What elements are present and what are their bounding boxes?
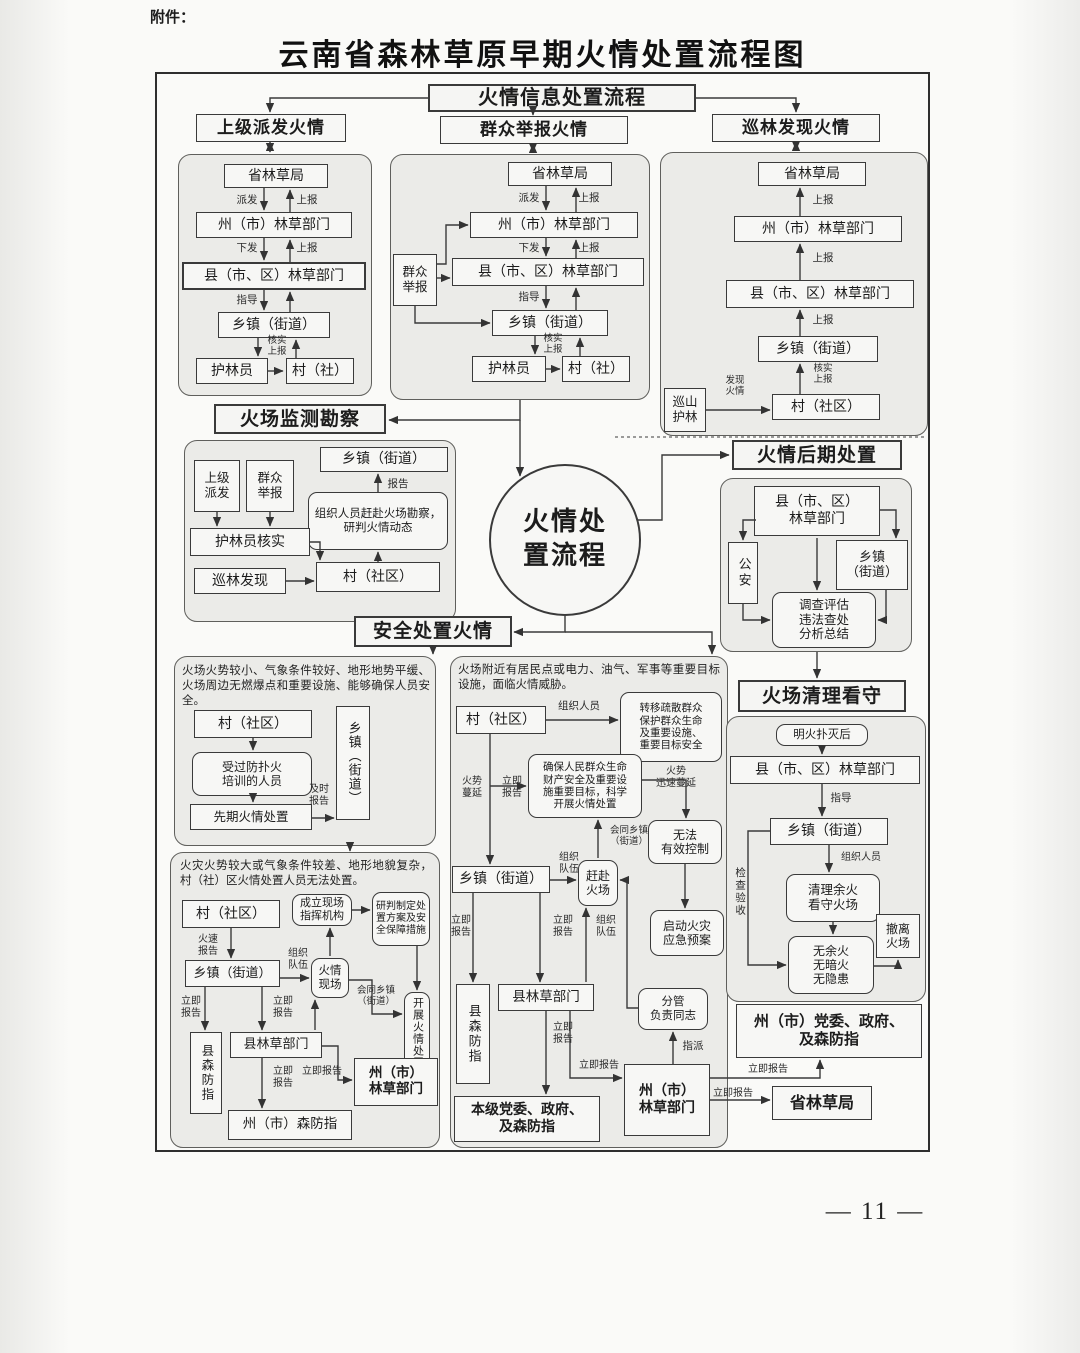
org-village-community: 村（社区） — [316, 562, 440, 592]
org-province-bureau: 省林草局 — [758, 162, 866, 186]
cleanup-section-title: 火场清理看守 — [738, 680, 906, 712]
arrow-label-immediate-report: 立即 报告 — [446, 915, 476, 938]
task-investigate-summarize: 调查评估 违法查处 分析总结 — [772, 592, 876, 648]
org-village-community: 村（社区） — [456, 706, 546, 734]
org-county-dept: 县（市、区） 林草部门 — [754, 486, 880, 536]
arrow-label-immediate-report: 立即 报告 — [268, 996, 298, 1019]
arrow-label-fast-spread: 火势 迅速蔓延 — [648, 766, 704, 789]
arrow-label-urgent-report: 火速 报告 — [192, 934, 224, 957]
arrow-label-report: 上报 — [808, 252, 838, 264]
arrow-label-immediate-report: 立即 报告 — [496, 776, 528, 799]
org-prefecture-fire-command: 州（市）森防指 — [228, 1110, 352, 1140]
source-public-report: 群众 举报 — [246, 460, 294, 512]
org-village-community: 村（社区） — [194, 710, 312, 738]
task-survey-fire-scene: 组织人员赶赴火场勘察，研判火情动态 — [308, 492, 448, 550]
org-township: 乡镇 （街道） — [836, 540, 908, 590]
branch-dispatch-title: 上级派发火情 — [196, 114, 346, 142]
threat-fire-condition: 火场附近有居民点或电力、油气、军事等重要目标设施，面临火情威胁。 — [458, 662, 720, 692]
arrow-label-guide: 指导 — [826, 792, 856, 804]
state-uncontrollable: 无法 有效控制 — [648, 820, 722, 864]
arrow-label-immediate-report: 立即 报告 — [548, 1022, 578, 1045]
source-superior-dispatch: 上级 派发 — [194, 460, 240, 512]
arrow-label-issue: 下发 — [232, 242, 262, 254]
org-county-dept: 县（市、区）林草部门 — [726, 280, 914, 308]
org-township: 乡镇（街道） — [452, 866, 550, 893]
role-leader-in-charge: 分管 负责同志 — [638, 988, 708, 1030]
arrow-label-report: 上报 — [292, 242, 322, 254]
node-fire-scene: 火情 现场 — [311, 958, 349, 998]
arrow-label-verify-report: 核实 上报 — [538, 334, 568, 356]
arrow-label-inspect-accept: 检查验收 — [734, 850, 746, 934]
org-prefecture-forestry-dept: 州（市） 林草部门 — [624, 1064, 710, 1136]
org-county-fire-command: 县森防指 — [190, 1032, 222, 1114]
scanned-flowchart-page: 附件： 云南省森林草原早期火情处置流程图 — 11 — 火情信息处置流程 上级派… — [0, 0, 1080, 1353]
page-number: — 11 — — [795, 1198, 955, 1226]
page-edge-shading-right — [1010, 0, 1080, 1353]
monitor-section-title: 火场监测勘察 — [214, 404, 386, 434]
org-local-party-gov-command: 本级党委、政府、 及森防指 — [454, 1096, 600, 1142]
org-county-dept: 县（市、区）林草部门 — [182, 262, 366, 290]
org-ranger: 护林员 — [196, 358, 268, 384]
info-process-header: 火情信息处置流程 — [428, 84, 696, 112]
org-township: 乡镇（街道） — [758, 336, 878, 362]
arrow-label-assign: 指派 — [678, 1040, 708, 1052]
arrow-label-report: 上报 — [808, 194, 838, 206]
branch-public-title: 群众举报火情 — [440, 116, 628, 144]
org-village-community: 村（社区） — [182, 900, 280, 928]
large-fire-condition: 火灾火势较大或气象条件较差、地形地貌复杂，村（社）区火情处置人员无法处置。 — [180, 858, 432, 888]
central-process-circle: 火情处置流程 — [489, 464, 641, 616]
arrow-label-issue: 下发 — [514, 242, 544, 254]
step-leave-fire-scene: 撤离 火场 — [876, 914, 920, 958]
arrow-label-joint-township: 会同乡镇 （街道） — [352, 986, 400, 1008]
arrow-label-immediate-report: 立即报告 — [708, 1088, 758, 1100]
page-title: 云南省森林草原早期火情处置流程图 — [155, 30, 930, 74]
step-ranger-verify: 护林员核实 — [190, 528, 310, 556]
org-province-bureau: 省林草局 — [224, 164, 328, 188]
step-trained-personnel: 受过防扑火 培训的人员 — [192, 752, 312, 796]
task-ensure-safety: 确保人民群众生命 财产安全及重要设 施重要目标，科学 开展火情处置 — [528, 754, 642, 818]
step-early-disposal: 先期火情处置 — [190, 804, 312, 830]
arrow-label-report: 上报 — [574, 242, 604, 254]
org-mountain-patrol: 巡山 护林 — [664, 388, 706, 432]
step-patrol-found: 巡林发现 — [194, 568, 286, 594]
arrow-label-timely-report: 及时 报告 — [302, 784, 336, 807]
org-prefecture-dept: 州（市）林草部门 — [196, 212, 352, 238]
org-village-community: 村（社区） — [772, 394, 880, 420]
org-village: 村（社） — [286, 358, 354, 384]
arrow-label-immediate-report: 立即报告 — [742, 1064, 794, 1076]
org-township: 乡镇（街道） — [770, 818, 888, 845]
org-county-dept: 县（市、区）林草部门 — [452, 258, 644, 286]
arrow-label-report: 上报 — [808, 314, 838, 326]
arrow-label-verify-report: 核实 上报 — [262, 336, 292, 358]
arrow-label-report: 上报 — [292, 194, 322, 206]
arrow-label-organize-team: 组织 队伍 — [282, 948, 314, 971]
arrow-label-dispatch: 派发 — [232, 194, 262, 206]
task-clear-and-guard: 清理余火 看守火场 — [786, 874, 880, 922]
arrow-label-immediate-report: 立即 报告 — [548, 915, 578, 938]
arrow-label-immediate-report: 立即报告 — [296, 1066, 348, 1078]
branch-patrol-title: 巡林发现火情 — [712, 114, 880, 142]
org-public-reporter: 群众 举报 — [393, 254, 437, 306]
step-formulate-plan: 研判制定处 置方案及安 全保障措施 — [372, 892, 430, 946]
step-establish-command: 成立现场 指挥机构 — [292, 894, 352, 926]
org-county-forestry-dept: 县林草部门 — [230, 1032, 322, 1058]
arrow-label-organize-people: 组织人员 — [550, 700, 608, 712]
arrow-label-found-fire: 发现 火情 — [716, 376, 754, 398]
arrow-label-organize-people: 组织人员 — [834, 852, 888, 864]
arrow-label-immediate-report: 立即 报告 — [268, 1066, 298, 1089]
step-rush-to-scene: 赶赴 火场 — [578, 860, 618, 906]
arrow-label-immediate-report: 立即 报告 — [176, 996, 206, 1019]
arrow-label-dispatch: 派发 — [514, 192, 544, 204]
post-section-title: 火情后期处置 — [732, 440, 902, 470]
step-activate-emergency-plan: 启动火灾 应急预案 — [650, 910, 724, 956]
org-village: 村（社） — [562, 356, 630, 382]
arrow-label-report: 上报 — [574, 192, 604, 204]
arrow-label-joint-township: 会同乡镇 （街道） — [600, 826, 658, 848]
task-evacuate-protect: 转移疏散群众 保护群众生命 及重要设施、 重要目标安全 — [620, 692, 722, 762]
arrow-label-organize-team: 组织 队伍 — [590, 915, 622, 938]
attachment-label: 附件： — [150, 6, 195, 27]
page-edge-shading-left — [0, 0, 70, 1353]
state-three-no: 无余火 无暗火 无隐患 — [788, 936, 874, 994]
org-prefecture-dept: 州（市）林草部门 — [734, 216, 902, 242]
arrow-label-report: 报告 — [382, 478, 414, 490]
org-ranger: 护林员 — [472, 356, 546, 382]
small-fire-condition: 火场火势较小、气象条件较好、地形地势平缓、火场周边无燃爆点和重要设施、能够确保人… — [182, 663, 430, 708]
safe-section-title: 安全处置火情 — [354, 616, 512, 647]
arrow-label-immediate-report: 立即报告 — [574, 1060, 624, 1072]
org-prefecture-forestry-dept: 州（市） 林草部门 — [354, 1058, 438, 1106]
arrow-label-guide: 指导 — [232, 294, 262, 306]
org-county-dept: 县（市、区）林草部门 — [730, 756, 920, 784]
org-province-bureau: 省林草局 — [772, 1086, 872, 1120]
org-prefecture-dept: 州（市）林草部门 — [470, 212, 638, 238]
arrow-label-verify-report: 核实 上报 — [806, 364, 840, 386]
arrow-label-guide: 指导 — [514, 291, 544, 303]
org-prefecture-party-gov-command: 州（市）党委、政府、 及森防指 — [736, 1004, 922, 1058]
org-township-vertical: 乡镇（街道） — [336, 706, 370, 820]
state-open-fire-out: 明火扑灭后 — [776, 724, 868, 746]
org-county-fire-command: 县森防指 — [456, 984, 490, 1084]
org-county-forestry-dept: 县林草部门 — [498, 984, 594, 1011]
org-province-bureau: 省林草局 — [508, 162, 612, 186]
arrow-label-fire-spread: 火势 蔓延 — [456, 776, 488, 799]
org-police: 公安 — [728, 542, 758, 604]
org-township: 乡镇（街道） — [320, 447, 448, 472]
org-township: 乡镇（街道） — [185, 960, 280, 987]
